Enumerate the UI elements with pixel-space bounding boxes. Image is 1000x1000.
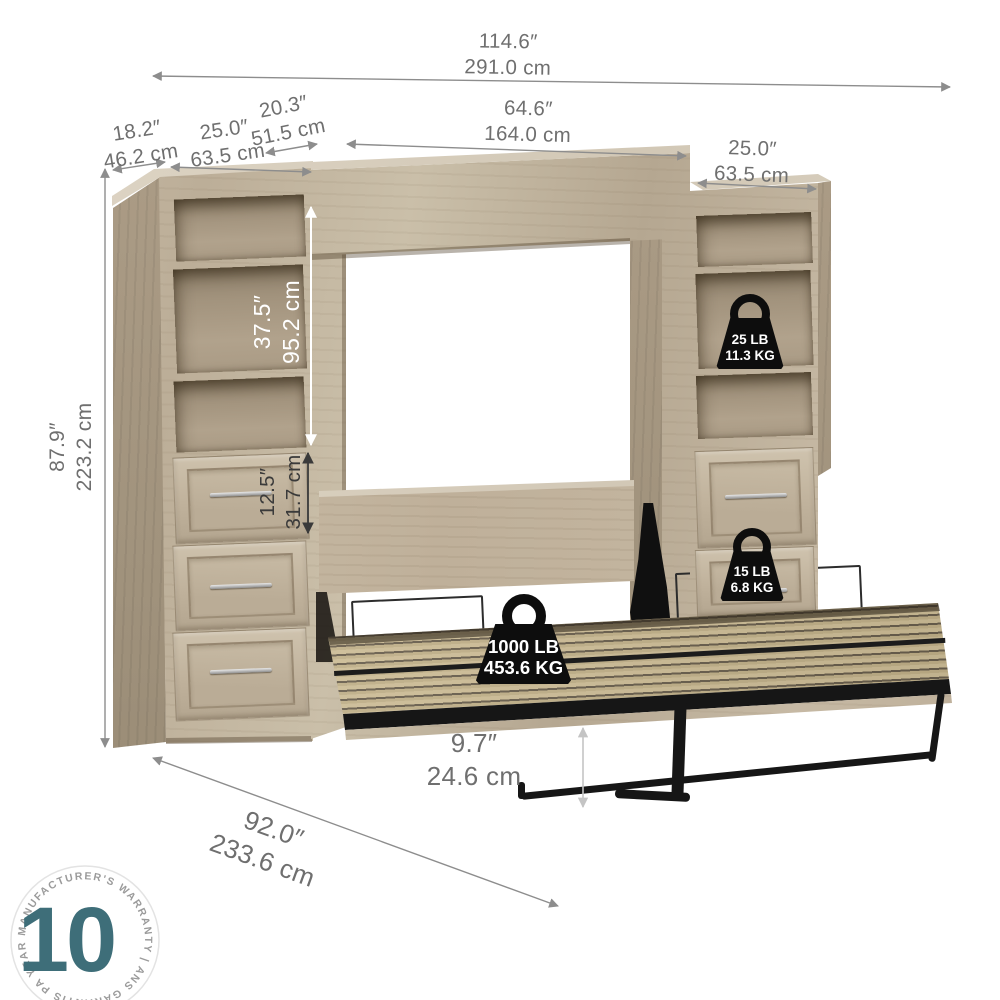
label-clearance: 9.7″ 24.6 cm: [414, 727, 534, 794]
label-overall-height: 87.9″ 223.2 cm: [45, 362, 97, 532]
overall-width-cm: 291.0 cm: [428, 54, 588, 83]
label-right-width: 25.0″ 63.5 cm: [691, 134, 813, 191]
drawer-height-cm: 31.7 cm: [281, 437, 307, 547]
bed-width-in: 64.6″: [463, 94, 594, 124]
bed-width-cm: 164.0 cm: [462, 121, 593, 151]
label-drawer-height: 12.5″ 31.7 cm: [255, 437, 305, 547]
clearance-in: 9.7″: [414, 727, 534, 760]
overall-width-in: 114.6″: [428, 28, 588, 57]
product-dimension-diagram: 25 LB 11.3 KG 15 LB 6.8 KG 1000 LB 453.6…: [0, 0, 1000, 1000]
right-width-in: 25.0″: [692, 134, 813, 164]
overall-height-cm: 223.2 cm: [72, 362, 99, 532]
label-bed-width: 64.6″ 164.0 cm: [462, 94, 593, 150]
drawer-height-in: 12.5″: [255, 437, 281, 547]
warranty-badge: YEAR MANUFACTURER'S WARRANTY | ANS GARAN…: [0, 848, 190, 1000]
clearance-cm: 24.6 cm: [414, 760, 534, 793]
shelf-height-in: 37.5″: [248, 247, 277, 397]
shelf-height-cm: 95.2 cm: [277, 247, 306, 397]
warranty-years: 10: [18, 889, 114, 991]
label-overall-width: 114.6″ 291.0 cm: [428, 28, 589, 83]
right-width-cm: 63.5 cm: [691, 160, 812, 190]
label-shelf-height: 37.5″ 95.2 cm: [248, 247, 304, 397]
overall-height-in: 87.9″: [45, 362, 72, 532]
